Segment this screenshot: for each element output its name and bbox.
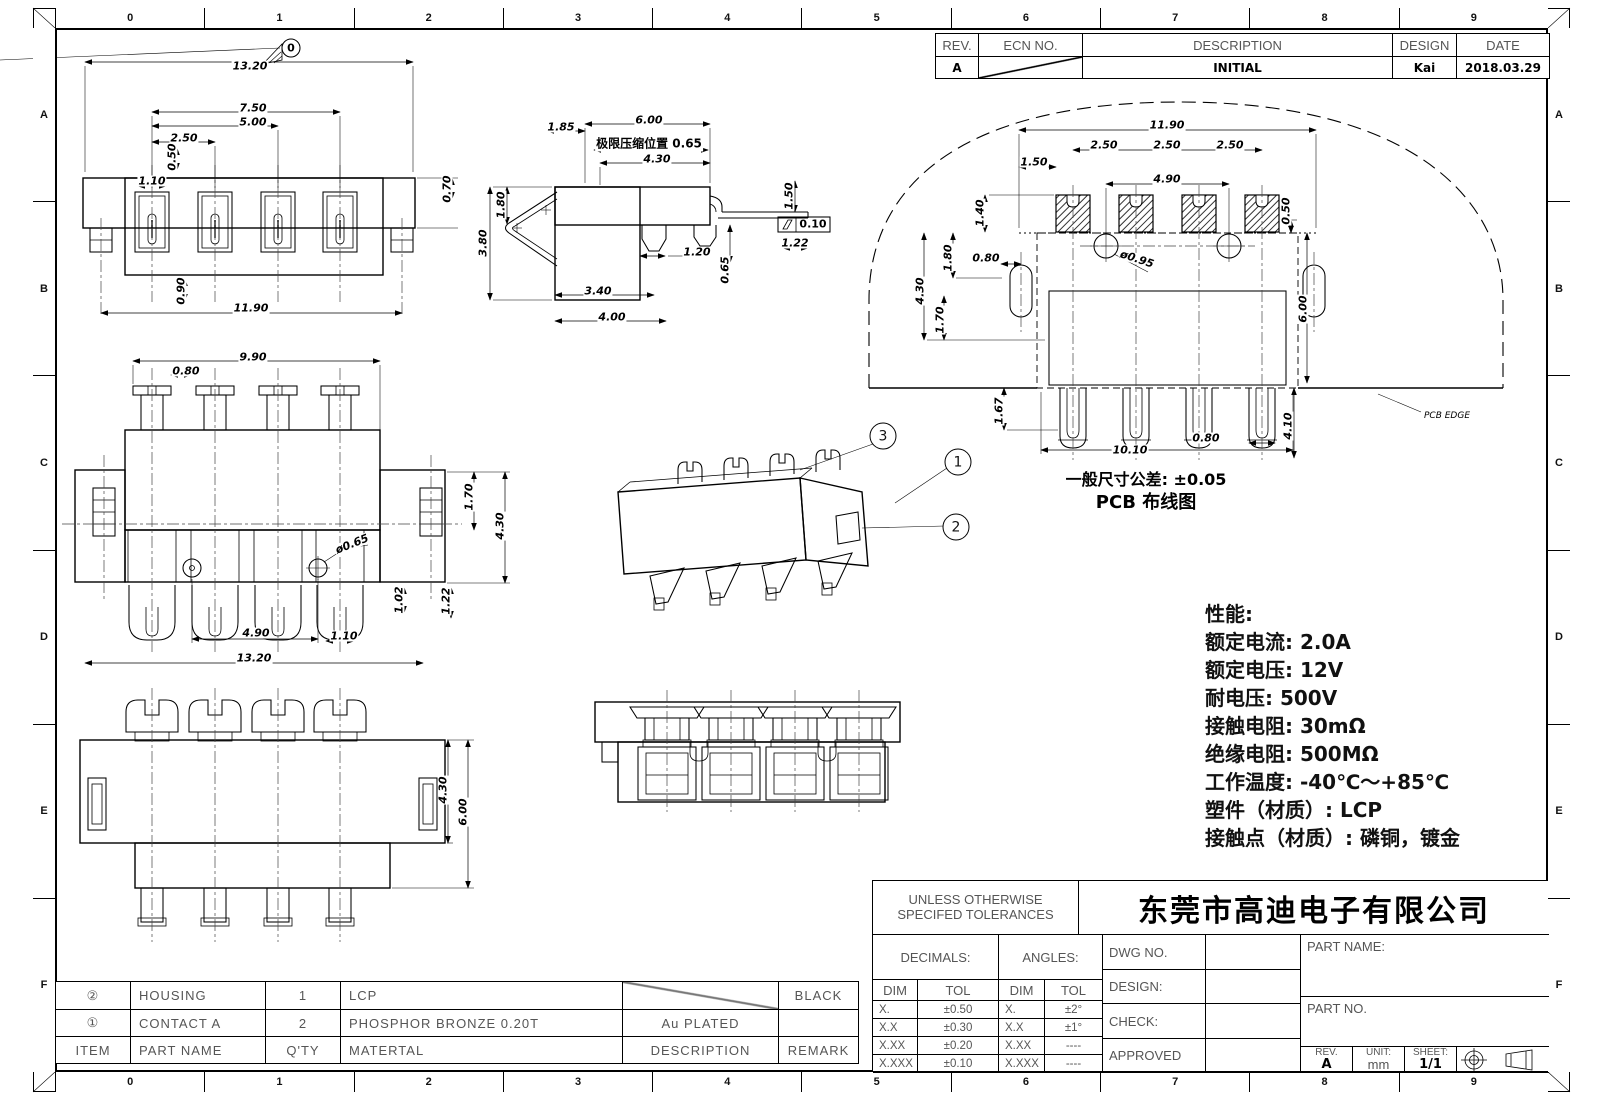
description-value: INITIAL bbox=[1082, 56, 1392, 78]
drawing-sheet: 0123456789 0123456789 ABCDEF ABCDEF bbox=[0, 0, 1605, 1100]
grid-number: 5 bbox=[802, 1072, 951, 1092]
dim-label: 0.80 bbox=[171, 366, 200, 377]
dim-label: 5.00 bbox=[238, 117, 267, 128]
dim-label: 4.00 bbox=[597, 312, 626, 323]
grid-letter: A bbox=[33, 28, 55, 202]
tol-row: X.XXX bbox=[999, 1055, 1045, 1073]
assembly-front-view-drawing bbox=[595, 690, 900, 812]
rev-cell: REV. A bbox=[1301, 1047, 1353, 1073]
grid-number: 3 bbox=[504, 1072, 653, 1092]
description-col-header: DESCRIPTION bbox=[1082, 34, 1392, 56]
tol-row: ±0.50 bbox=[918, 1001, 999, 1019]
dim-label: 11.90 bbox=[1149, 120, 1186, 131]
rev-value: A bbox=[936, 56, 978, 78]
dim-label: 4.30 bbox=[915, 276, 926, 305]
company-name: 东莞市高迪电子有限公司 bbox=[1079, 881, 1549, 935]
grid-number: 6 bbox=[952, 8, 1101, 28]
design-col-header: DESIGN bbox=[1392, 34, 1456, 56]
dim-label: 1.80 bbox=[943, 243, 954, 272]
dim-label: 0.50 bbox=[1281, 196, 1292, 225]
bom-header-item: ITEM bbox=[55, 1036, 130, 1063]
design-value bbox=[1206, 970, 1301, 1004]
spec-line-6: 工作温度: -40℃～+85℃ bbox=[1205, 766, 1449, 795]
dim-label: 3.40 bbox=[583, 286, 612, 297]
ecn-col-header: ECN NO. bbox=[978, 34, 1082, 56]
tol-row: ---- bbox=[1045, 1037, 1103, 1055]
grid-number: 7 bbox=[1101, 1072, 1250, 1092]
tol-row: X.XX bbox=[873, 1037, 918, 1055]
tol-row: X.X bbox=[873, 1019, 918, 1037]
dim-label: 6.00 bbox=[1298, 294, 1309, 323]
tol-row: ---- bbox=[1045, 1055, 1103, 1073]
revision-table: REV. ECN NO. DESCRIPTION DESIGN DATE A I… bbox=[935, 33, 1550, 79]
dim-label: 2.50 bbox=[1215, 140, 1244, 151]
dim-label: 4.90 bbox=[1152, 174, 1181, 185]
spec-line-0: 性能: bbox=[1205, 598, 1253, 627]
dim-label: 0.10 bbox=[798, 218, 827, 231]
spec-line-3: 耐电压: 500V bbox=[1205, 682, 1337, 711]
tolerance-title-line1: UNLESS OTHERWISE bbox=[908, 893, 1042, 907]
bom-qty: 2 bbox=[265, 1009, 340, 1036]
dim-label: 1.50 bbox=[1019, 157, 1048, 168]
dim-label: 0.70 bbox=[442, 174, 453, 203]
dim-label: 1.20 bbox=[682, 247, 711, 258]
sheet-cell: SHEET: 1/1 bbox=[1405, 1047, 1457, 1073]
callout-balloon-2: 2 bbox=[943, 514, 970, 541]
tol-row: X.XX bbox=[999, 1037, 1045, 1055]
sheet-value: 1/1 bbox=[1419, 1058, 1442, 1072]
unit-value: mm bbox=[1368, 1058, 1390, 1072]
dim-col-header: DIM bbox=[999, 980, 1045, 1001]
grid-number: 5 bbox=[802, 8, 951, 28]
bottom-view-drawing bbox=[80, 688, 474, 942]
callout-balloon-1: 1 bbox=[945, 449, 972, 476]
grid-number: 2 bbox=[355, 8, 504, 28]
grid-letter: C bbox=[1548, 376, 1570, 550]
drawing-note: 一般尺寸公差: ±0.05 bbox=[1065, 466, 1228, 490]
dim-label: 0 bbox=[286, 42, 296, 55]
dim-label: 2.50 bbox=[1152, 140, 1181, 151]
tol-col-header: TOL bbox=[918, 980, 999, 1001]
dim-label: 6.00 bbox=[634, 115, 663, 126]
front-view-drawing bbox=[0, 39, 458, 314]
approved-label: APPROVED bbox=[1103, 1039, 1206, 1073]
grid-letter: A bbox=[1548, 28, 1570, 202]
grid-letter: C bbox=[33, 376, 55, 550]
grid-letter: D bbox=[33, 551, 55, 725]
dwg-no-label: DWG NO. bbox=[1103, 935, 1206, 970]
date-value: 2018.03.29 bbox=[1456, 56, 1549, 78]
tol-col-header: TOL bbox=[1045, 980, 1103, 1001]
spec-line-4: 接触电阻: 30mΩ bbox=[1205, 710, 1366, 739]
grid-number: 4 bbox=[653, 8, 802, 28]
dim-label: 4.90 bbox=[241, 628, 270, 639]
tol-row: ±0.20 bbox=[918, 1037, 999, 1055]
bom-description: Au PLATED bbox=[622, 1009, 778, 1036]
design-label: DESIGN: bbox=[1103, 970, 1206, 1004]
grid-letter: F bbox=[33, 899, 55, 1072]
spec-line-5: 绝缘电阻: 500MΩ bbox=[1205, 738, 1379, 767]
grid-letter: B bbox=[33, 202, 55, 376]
isometric-view-drawing bbox=[618, 444, 947, 610]
spec-line-2: 额定电压: 12V bbox=[1205, 654, 1343, 683]
rev-value: A bbox=[1321, 1058, 1331, 1072]
dim-label: 1.40 bbox=[975, 198, 986, 227]
dim-label: 2.50 bbox=[1089, 140, 1118, 151]
dim-label: PCB EDGE bbox=[1423, 411, 1471, 421]
decimals-label: DECIMALS: bbox=[873, 935, 999, 980]
grid-letter: E bbox=[1548, 725, 1570, 899]
dim-label: 1.22 bbox=[780, 238, 809, 249]
rev-col-header: REV. bbox=[936, 34, 978, 56]
tol-row: X.X bbox=[999, 1019, 1045, 1037]
grid-number: 1 bbox=[205, 1072, 354, 1092]
dim-label: 1.50 bbox=[784, 181, 795, 210]
dim-label: 0.80 bbox=[971, 253, 1000, 264]
dim-label: 4.30 bbox=[438, 775, 449, 804]
bom-table: ② HOUSING 1 LCP BLACK ① CONTACT A 2 PHOS… bbox=[55, 981, 859, 1064]
dim-label: 1.10 bbox=[329, 631, 358, 642]
bom-part-name: HOUSING bbox=[130, 982, 265, 1009]
grid-number: 0 bbox=[56, 8, 205, 28]
tol-row: ±0.30 bbox=[918, 1019, 999, 1037]
grid-letter: B bbox=[1548, 202, 1570, 376]
third-angle-projection-icon bbox=[1460, 1048, 1546, 1072]
bom-header-remark: REMARK bbox=[778, 1036, 858, 1063]
part-name-label: PART NAME: bbox=[1301, 935, 1549, 997]
tol-row: X. bbox=[873, 1001, 918, 1019]
bom-item: ① bbox=[55, 1009, 130, 1036]
tol-row: ±0.10 bbox=[918, 1055, 999, 1073]
grid-number: 3 bbox=[504, 8, 653, 28]
check-label: CHECK: bbox=[1103, 1004, 1206, 1039]
dim-label: 1.02 bbox=[394, 585, 405, 614]
dim-label: 6.00 bbox=[458, 797, 469, 826]
grid-ruler-top: 0123456789 bbox=[55, 8, 1548, 28]
dim-label: 4.30 bbox=[642, 154, 671, 165]
tol-row: ±2° bbox=[1045, 1001, 1103, 1019]
bom-remark bbox=[778, 1009, 858, 1036]
grid-letter: F bbox=[1548, 899, 1570, 1072]
dim-label: 0.80 bbox=[1191, 433, 1220, 444]
grid-number: 8 bbox=[1250, 8, 1399, 28]
bom-description bbox=[622, 982, 778, 1009]
pcb-layout-drawing bbox=[869, 102, 1503, 460]
bom-material: PHOSPHOR BRONZE 0.20T bbox=[340, 1009, 622, 1036]
dim-label: 11.90 bbox=[233, 303, 270, 314]
tolerance-title: UNLESS OTHERWISE SPECIFED TOLERANCES bbox=[873, 881, 1079, 935]
dim-label: 13.20 bbox=[232, 61, 269, 72]
tol-row: X. bbox=[999, 1001, 1045, 1019]
dim-label: 1.80 bbox=[496, 190, 507, 219]
bom-header-qty: Q'TY bbox=[265, 1036, 340, 1063]
part-no-label: PART NO. bbox=[1301, 997, 1549, 1047]
unit-cell: UNIT: mm bbox=[1353, 1047, 1405, 1073]
design-value: Kai bbox=[1392, 56, 1456, 78]
bom-header-description: DESCRIPTION bbox=[622, 1036, 778, 1063]
dim-label: 13.20 bbox=[236, 653, 273, 664]
grid-number: 9 bbox=[1400, 8, 1548, 28]
approved-value bbox=[1206, 1039, 1301, 1073]
ecn-value-cell bbox=[978, 56, 1082, 78]
grid-ruler-left: ABCDEF bbox=[33, 28, 55, 1072]
dim-label: 4.30 bbox=[495, 511, 506, 540]
dim-label: 4.10 bbox=[1283, 411, 1294, 440]
spec-line-8: 接触点（材质）: 磷铜，镀金 bbox=[1205, 822, 1460, 851]
bom-material: LCP bbox=[340, 982, 622, 1009]
bom-header-part-name: PART NAME bbox=[130, 1036, 265, 1063]
date-col-header: DATE bbox=[1456, 34, 1549, 56]
dim-label: 3.80 bbox=[478, 228, 489, 257]
top-view-drawing bbox=[62, 361, 510, 663]
projection-symbol-cell bbox=[1457, 1047, 1549, 1073]
angles-label: ANGLES: bbox=[999, 935, 1103, 980]
dim-label: 7.50 bbox=[238, 103, 267, 114]
grid-number: 2 bbox=[355, 1072, 504, 1092]
tolerance-title-line2: SPECIFED TOLERANCES bbox=[897, 908, 1053, 922]
grid-number: 8 bbox=[1250, 1072, 1399, 1092]
grid-number: 1 bbox=[205, 8, 354, 28]
dim-label: 0.65 bbox=[720, 255, 731, 284]
grid-letter: E bbox=[33, 725, 55, 899]
bom-qty: 1 bbox=[265, 982, 340, 1009]
dim-label: 1.22 bbox=[441, 586, 452, 615]
spec-line-1: 额定电流: 2.0A bbox=[1205, 626, 1351, 655]
grid-letter: D bbox=[1548, 551, 1570, 725]
spec-line-7: 塑件（材质）: LCP bbox=[1205, 794, 1382, 823]
drawing-note: PCB 布线图 bbox=[1095, 488, 1197, 514]
dim-label: 10.10 bbox=[1112, 445, 1149, 456]
bom-item: ② bbox=[55, 982, 130, 1009]
bom-part-name: CONTACT A bbox=[130, 1009, 265, 1036]
grid-ruler-bottom: 0123456789 bbox=[55, 1072, 1548, 1092]
dim-label: 0.50 bbox=[167, 142, 178, 171]
dim-label: 1.67 bbox=[994, 396, 1005, 425]
grid-number: 9 bbox=[1400, 1072, 1548, 1092]
dim-label: 1.70 bbox=[935, 305, 946, 334]
grid-ruler-right: ABCDEF bbox=[1548, 28, 1570, 1072]
grid-number: 7 bbox=[1101, 8, 1250, 28]
dim-label: 1.85 bbox=[546, 122, 575, 133]
callout-balloon-3: 3 bbox=[870, 423, 897, 450]
grid-number: 0 bbox=[56, 1072, 205, 1092]
dwg-no-value bbox=[1206, 935, 1301, 970]
bom-remark: BLACK bbox=[778, 982, 858, 1009]
dim-label: 极限压缩位置 0.65 bbox=[595, 135, 703, 152]
bom-header-material: MATERTAL bbox=[340, 1036, 622, 1063]
dim-label: 1.10 bbox=[137, 176, 166, 187]
tol-row: X.XXX bbox=[873, 1055, 918, 1073]
check-value bbox=[1206, 1004, 1301, 1039]
dim-label: 0.90 bbox=[176, 276, 187, 305]
grid-number: 4 bbox=[653, 1072, 802, 1092]
dim-col-header: DIM bbox=[873, 980, 918, 1001]
dim-label: 1.70 bbox=[464, 482, 475, 511]
dim-label: 9.90 bbox=[238, 352, 267, 363]
title-block: UNLESS OTHERWISE SPECIFED TOLERANCES 东莞市… bbox=[872, 880, 1548, 1072]
tol-row: ±1° bbox=[1045, 1019, 1103, 1037]
grid-number: 6 bbox=[952, 1072, 1101, 1092]
